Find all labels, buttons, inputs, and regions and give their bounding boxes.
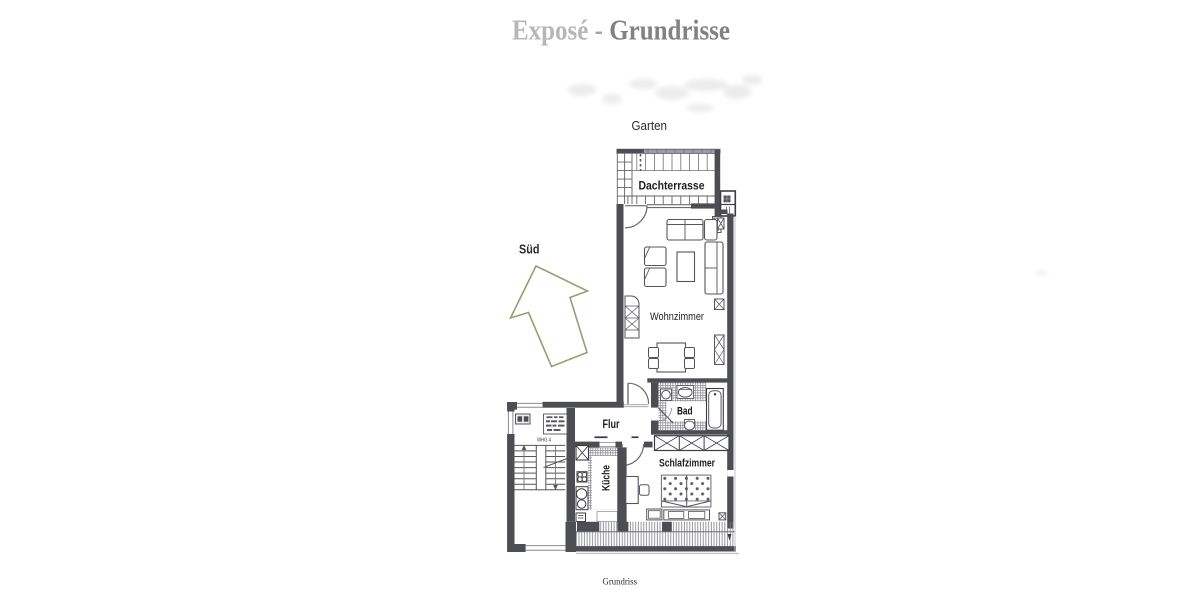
svg-text:Wohnzimmer: Wohnzimmer bbox=[650, 311, 704, 323]
svg-text:Küche: Küche bbox=[601, 465, 613, 491]
svg-text:Exposé - Grundrisse: Exposé - Grundrisse bbox=[512, 16, 730, 47]
svg-text:Dachterrasse: Dachterrasse bbox=[639, 179, 705, 193]
svg-text:Grundriss: Grundriss bbox=[603, 578, 638, 588]
svg-text:Bad: Bad bbox=[677, 406, 693, 418]
svg-text:Süd: Süd bbox=[519, 242, 540, 257]
svg-text:Flur: Flur bbox=[603, 417, 620, 431]
svg-text:Garten: Garten bbox=[632, 118, 668, 133]
svg-text:WHG 4: WHG 4 bbox=[537, 438, 551, 444]
svg-text:Schlafzimmer: Schlafzimmer bbox=[659, 458, 716, 470]
